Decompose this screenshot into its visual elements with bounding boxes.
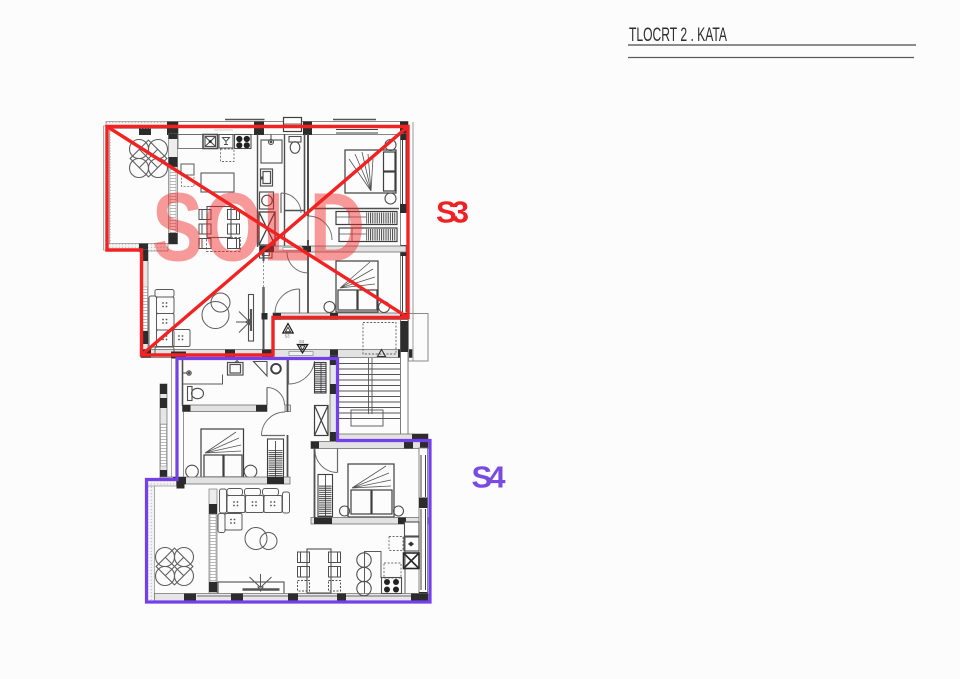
- svg-text:TLOCRT 2 . KATA: TLOCRT 2 . KATA: [629, 24, 727, 46]
- svg-text:S3: S3: [436, 195, 469, 230]
- svg-text:SOLD: SOLD: [152, 173, 365, 282]
- svg-text:S4: S4: [299, 339, 305, 344]
- svg-text:S3: S3: [285, 334, 291, 339]
- svg-text:S4: S4: [472, 460, 507, 495]
